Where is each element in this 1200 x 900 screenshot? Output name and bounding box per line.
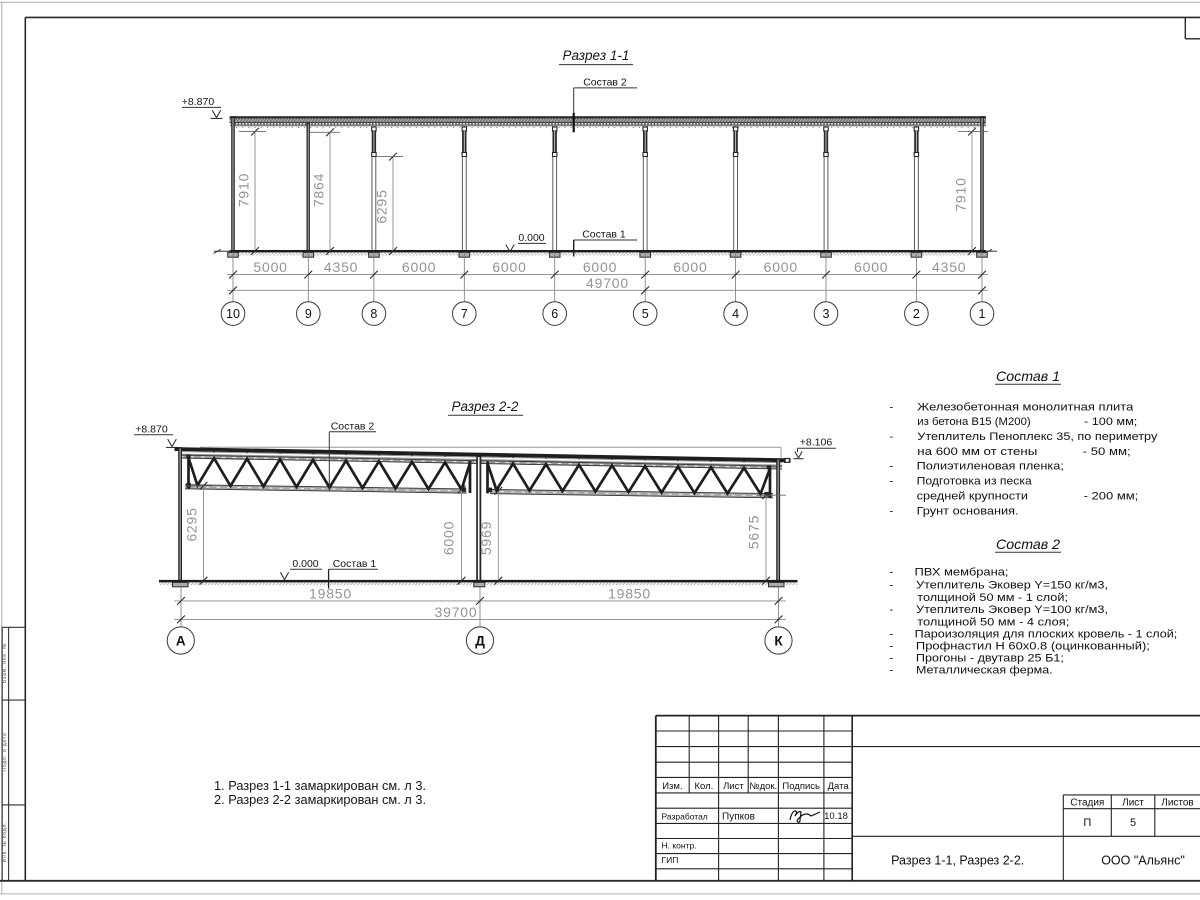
- svg-text:+8.870: +8.870: [182, 96, 215, 108]
- svg-text:Прогоны - двутавр 25 Б1;: Прогоны - двутавр 25 Б1;: [916, 653, 1064, 665]
- svg-text:К: К: [774, 633, 783, 648]
- svg-text:Инв. № подл.: Инв. № подл.: [2, 822, 8, 863]
- svg-text:-: -: [890, 475, 894, 487]
- svg-text:7: 7: [461, 307, 468, 321]
- svg-text:ООО "Альянс": ООО "Альянс": [1101, 853, 1185, 867]
- svg-text:Разрез 2-2: Разрез 2-2: [452, 399, 519, 414]
- svg-text:Листов: Листов: [1161, 797, 1194, 808]
- svg-text:5000: 5000: [253, 259, 287, 275]
- svg-text:Подготовка из песка: Подготовка из песка: [917, 475, 1033, 487]
- svg-text:19850: 19850: [309, 585, 352, 601]
- svg-text:Лист: Лист: [1122, 797, 1144, 808]
- svg-text:0.000: 0.000: [518, 232, 544, 244]
- svg-text:ГИП: ГИП: [662, 855, 679, 865]
- svg-text:5969: 5969: [478, 521, 494, 555]
- svg-text:Подпись: Подпись: [782, 781, 820, 792]
- svg-text:8: 8: [370, 307, 377, 321]
- svg-text:П: П: [1083, 817, 1091, 829]
- svg-text:1: 1: [979, 307, 986, 321]
- svg-text:- 50 мм;: - 50 мм;: [1083, 446, 1131, 458]
- svg-text:Железобетонная монолитная пли: Железобетонная монолитная плита: [917, 402, 1134, 414]
- svg-text:Утеплитель Эковер Y=100 кг/м3,: Утеплитель Эковер Y=100 кг/м3,: [916, 604, 1108, 616]
- svg-text:5675: 5675: [746, 515, 762, 549]
- svg-text:Разработал: Разработал: [662, 811, 708, 821]
- svg-text:6000: 6000: [492, 259, 526, 275]
- svg-text:7910: 7910: [236, 173, 252, 207]
- svg-text:10: 10: [226, 307, 240, 321]
- svg-text:10.18: 10.18: [824, 811, 848, 822]
- svg-text:толщиной 50 мм - 4 слоя;: толщиной 50 мм - 4 слоя;: [917, 616, 1069, 628]
- svg-text:-: -: [890, 431, 894, 443]
- svg-text:Разрез 1-1: Разрез 1-1: [563, 48, 630, 63]
- svg-text:№док.: №док.: [749, 781, 777, 792]
- svg-text:- 100 мм;: - 100 мм;: [1084, 416, 1137, 428]
- svg-text:Состав 2: Состав 2: [331, 420, 375, 432]
- svg-text:49700: 49700: [586, 275, 629, 291]
- svg-text:Состав 2: Состав 2: [583, 77, 627, 89]
- svg-text:Грунт основания.: Грунт основания.: [917, 506, 1019, 518]
- svg-text:-: -: [890, 567, 894, 579]
- svg-text:-: -: [890, 665, 894, 677]
- svg-text:Разрез 1-1, Разрез 2-2.: Разрез 1-1, Разрез 2-2.: [891, 853, 1024, 867]
- svg-text:4350: 4350: [324, 259, 358, 275]
- svg-text:Взам. инв. №: Взам. инв. №: [2, 643, 8, 684]
- svg-text:6: 6: [551, 307, 558, 321]
- svg-text:0.000: 0.000: [292, 558, 318, 570]
- svg-text:Дата: Дата: [828, 781, 850, 792]
- svg-text:Пупков: Пупков: [722, 811, 755, 822]
- svg-text:на 600 мм от стены: на 600 мм от стены: [917, 446, 1037, 458]
- svg-text:А: А: [176, 633, 186, 648]
- svg-text:6000: 6000: [673, 259, 707, 275]
- svg-text:Кол.: Кол.: [695, 781, 714, 792]
- svg-text:-: -: [890, 580, 894, 592]
- svg-text:6295: 6295: [374, 189, 390, 223]
- svg-text:Утеплитель Эковер Y=150 кг/м3,: Утеплитель Эковер Y=150 кг/м3,: [916, 580, 1108, 592]
- svg-text:Изм.: Изм.: [662, 781, 682, 792]
- svg-text:ПВХ мембрана;: ПВХ мембрана;: [915, 567, 1009, 579]
- svg-text:-: -: [890, 628, 894, 640]
- svg-text:6000: 6000: [583, 259, 617, 275]
- svg-text:- 200 мм;: - 200 мм;: [1084, 491, 1139, 503]
- svg-text:средней крупности: средней крупности: [917, 491, 1028, 503]
- svg-text:19850: 19850: [608, 585, 651, 601]
- svg-text:9: 9: [305, 307, 312, 321]
- svg-text:Стадия: Стадия: [1070, 797, 1104, 808]
- svg-text:Профнастил Н 60х0.8 (оцинкован: Профнастил Н 60х0.8 (оцинкованный);: [916, 641, 1150, 653]
- svg-text:толщиной 50 мм - 1 слой;: толщиной 50 мм - 1 слой;: [917, 592, 1068, 604]
- svg-text:5: 5: [1130, 817, 1136, 829]
- svg-text:6295: 6295: [184, 507, 200, 541]
- svg-text:-: -: [890, 506, 894, 518]
- svg-text:2: 2: [913, 307, 920, 321]
- svg-text:-: -: [890, 604, 894, 616]
- svg-text:Пароизоляция для плоских крове: Пароизоляция для плоских кровель - 1 сло…: [915, 628, 1178, 640]
- svg-text:Н. контр.: Н. контр.: [662, 841, 697, 851]
- svg-text:Утеплитель Пеноплекс 35, по пе: Утеплитель Пеноплекс 35, по периметру: [917, 431, 1158, 443]
- svg-text:Полиэтиленовая пленка;: Полиэтиленовая пленка;: [917, 461, 1064, 473]
- svg-text:-: -: [890, 653, 894, 665]
- svg-text:3: 3: [823, 307, 830, 321]
- svg-text:Металлическая ферма.: Металлическая ферма.: [916, 665, 1053, 677]
- svg-text:5: 5: [642, 307, 649, 321]
- svg-text:-: -: [890, 461, 894, 473]
- svg-text:Состав 1: Состав 1: [333, 558, 377, 570]
- svg-text:4: 4: [732, 307, 739, 321]
- svg-text:6000: 6000: [764, 259, 798, 275]
- svg-text:из бетона В15 (М200): из бетона В15 (М200): [917, 416, 1030, 428]
- svg-text:7864: 7864: [311, 173, 327, 207]
- svg-text:7910: 7910: [953, 177, 969, 211]
- svg-text:-: -: [890, 641, 894, 653]
- svg-text:Д: Д: [475, 633, 485, 648]
- svg-text:4350: 4350: [932, 259, 966, 275]
- svg-text:Состав 1: Состав 1: [996, 368, 1060, 384]
- svg-text:Подп. и дата: Подп. и дата: [2, 732, 8, 771]
- svg-text:Лист: Лист: [723, 781, 744, 792]
- svg-text:Состав 1: Состав 1: [582, 229, 626, 241]
- svg-text:-: -: [890, 402, 894, 414]
- svg-text:+8.870: +8.870: [135, 424, 168, 436]
- svg-text:39700: 39700: [435, 604, 478, 620]
- svg-text:+8.106: +8.106: [800, 436, 833, 448]
- svg-text:6000: 6000: [854, 259, 888, 275]
- svg-text:6000: 6000: [402, 259, 436, 275]
- svg-text:6000: 6000: [441, 521, 457, 555]
- svg-text:Состав 2: Состав 2: [996, 536, 1060, 552]
